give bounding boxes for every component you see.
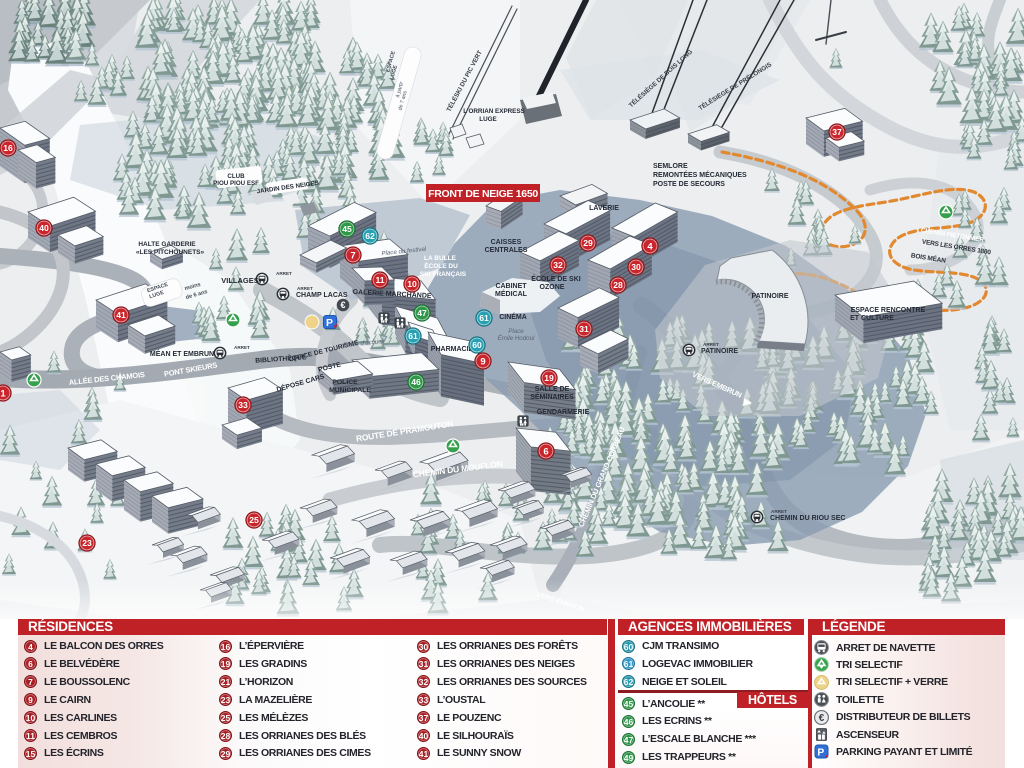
svg-text:MÉDICAL: MÉDICAL — [495, 289, 528, 298]
svg-text:ARRET: ARRET — [297, 286, 313, 291]
svg-text:GENDARMERIE: GENDARMERIE — [537, 409, 590, 416]
svg-text:ARRET: ARRET — [276, 271, 292, 276]
svg-text:CHEMIN DU RIOU SEC: CHEMIN DU RIOU SEC — [770, 515, 845, 522]
svg-text:ÉCOLE DE SKI: ÉCOLE DE SKI — [531, 274, 580, 283]
svg-text:41: 41 — [116, 310, 126, 320]
svg-text:P: P — [817, 748, 824, 759]
svg-text:9: 9 — [480, 356, 485, 367]
svg-text:SÉMINAIRES: SÉMINAIRES — [530, 392, 574, 401]
svg-text:MUNICIPALE: MUNICIPALE — [329, 387, 371, 394]
svg-text:32: 32 — [553, 260, 563, 270]
svg-text:ARRET: ARRET — [771, 509, 787, 514]
svg-text:SKI FRANÇAIS: SKI FRANÇAIS — [420, 271, 467, 278]
svg-text:ESPACE RENCONTRE: ESPACE RENCONTRE — [851, 307, 926, 314]
svg-text:OZONE: OZONE — [540, 284, 565, 291]
svg-text:30: 30 — [631, 262, 641, 272]
svg-text:VILLAGES: VILLAGES — [221, 276, 259, 285]
svg-text:LAVERIE: LAVERIE — [589, 205, 619, 212]
svg-text:7: 7 — [350, 250, 355, 261]
svg-text:4: 4 — [647, 241, 653, 252]
svg-text:Émile Hodoul: Émile Hodoul — [498, 335, 535, 342]
svg-text:CENTRALES: CENTRALES — [485, 247, 528, 254]
svg-text:10: 10 — [407, 279, 417, 289]
svg-text:28: 28 — [613, 280, 623, 290]
svg-text:6: 6 — [543, 446, 548, 457]
svg-text:25: 25 — [249, 515, 259, 525]
svg-text:46: 46 — [411, 377, 421, 387]
svg-text:CLUB: CLUB — [227, 173, 245, 180]
svg-text:31: 31 — [579, 324, 589, 334]
svg-text:60: 60 — [472, 340, 482, 350]
svg-text:33: 33 — [238, 400, 248, 410]
svg-text:CAISSES: CAISSES — [491, 239, 522, 246]
svg-text:ÉCOLE DU: ÉCOLE DU — [424, 261, 458, 270]
svg-text:PHARMACIE: PHARMACIE — [431, 346, 474, 353]
svg-text:LUGE: LUGE — [479, 116, 497, 123]
svg-text:19: 19 — [544, 373, 554, 383]
svg-text:POLICE: POLICE — [332, 379, 358, 386]
svg-text:40: 40 — [39, 223, 49, 233]
svg-text:47: 47 — [417, 308, 427, 318]
svg-text:PIOU PIOU ESF: PIOU PIOU ESF — [213, 180, 259, 187]
svg-text:«LES PITCHOUNETS»: «LES PITCHOUNETS» — [136, 249, 205, 256]
svg-text:€: € — [819, 712, 825, 723]
svg-text:62: 62 — [365, 231, 375, 241]
svg-text:POSTE DE SECOURS: POSTE DE SECOURS — [653, 181, 725, 188]
svg-text:61: 61 — [408, 331, 418, 341]
svg-text:ARRET: ARRET — [703, 342, 719, 347]
svg-text:REMONTÉES MÉCANIQUES: REMONTÉES MÉCANIQUES — [653, 170, 747, 179]
svg-text:1: 1 — [0, 388, 6, 399]
svg-text:LA BULLE: LA BULLE — [424, 255, 457, 262]
svg-text:16: 16 — [3, 143, 13, 153]
svg-text:ET CULTURE: ET CULTURE — [850, 315, 894, 322]
svg-text:CABINET: CABINET — [495, 283, 527, 290]
svg-text:SALLE DE: SALLE DE — [535, 386, 570, 393]
svg-text:FRONT DE NEIGE 1650: FRONT DE NEIGE 1650 — [428, 188, 538, 200]
svg-text:L’ORRIAN EXPRESS: L’ORRIAN EXPRESS — [463, 108, 525, 115]
svg-text:CHAMP LACAS: CHAMP LACAS — [296, 292, 348, 299]
svg-text:11: 11 — [375, 275, 384, 285]
svg-text:29: 29 — [583, 238, 593, 248]
svg-text:61: 61 — [479, 313, 489, 323]
svg-text:MÉAN ET EMBRUN: MÉAN ET EMBRUN — [150, 349, 214, 358]
svg-text:SEMLORE: SEMLORE — [653, 163, 688, 170]
svg-text:PATINOIRE: PATINOIRE — [701, 348, 738, 355]
svg-text:37: 37 — [832, 127, 842, 137]
svg-text:Place: Place — [508, 328, 524, 335]
svg-text:ARRET: ARRET — [234, 345, 250, 350]
svg-text:PATINOIRE: PATINOIRE — [751, 293, 788, 300]
svg-text:23: 23 — [82, 538, 92, 548]
svg-text:45: 45 — [342, 224, 352, 234]
svg-text:HALTE GARDERIE: HALTE GARDERIE — [138, 241, 196, 248]
svg-text:CINÉMA: CINÉMA — [499, 312, 527, 321]
